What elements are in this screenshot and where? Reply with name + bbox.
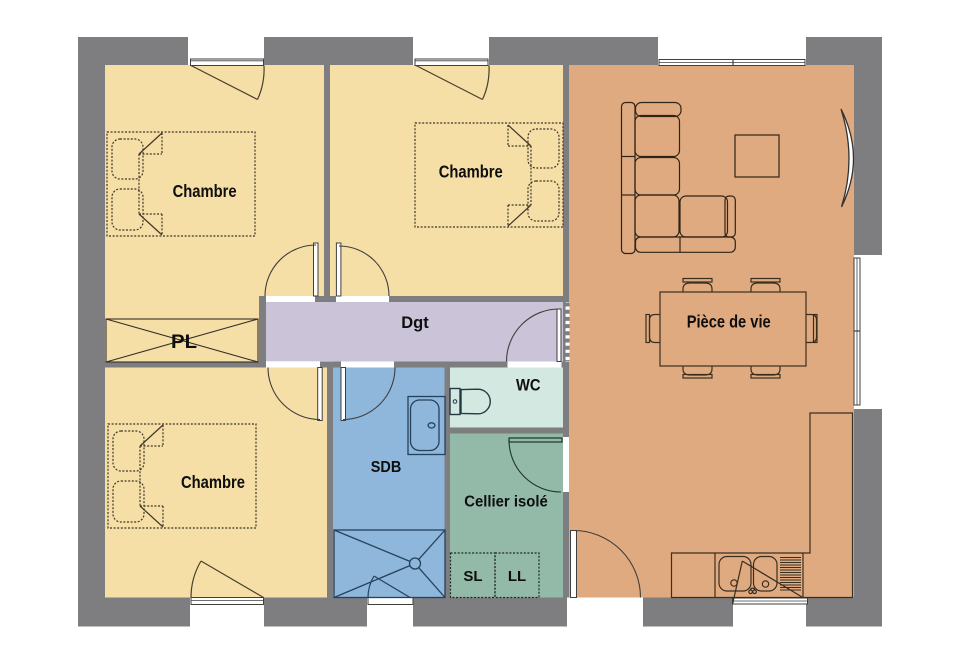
svg-text:Chambre: Chambre — [439, 162, 503, 182]
svg-text:Pièce de vie: Pièce de vie — [687, 312, 771, 332]
svg-text:SL: SL — [463, 568, 482, 585]
svg-text:Chambre: Chambre — [181, 472, 245, 492]
svg-text:WC: WC — [516, 376, 541, 395]
svg-text:Cellier isolé: Cellier isolé — [464, 494, 548, 511]
svg-text:SDB: SDB — [371, 459, 402, 476]
svg-text:LL: LL — [508, 568, 526, 585]
svg-text:PL: PL — [171, 331, 197, 353]
svg-text:Chambre: Chambre — [173, 181, 237, 201]
svg-text:Dgt: Dgt — [401, 314, 429, 332]
